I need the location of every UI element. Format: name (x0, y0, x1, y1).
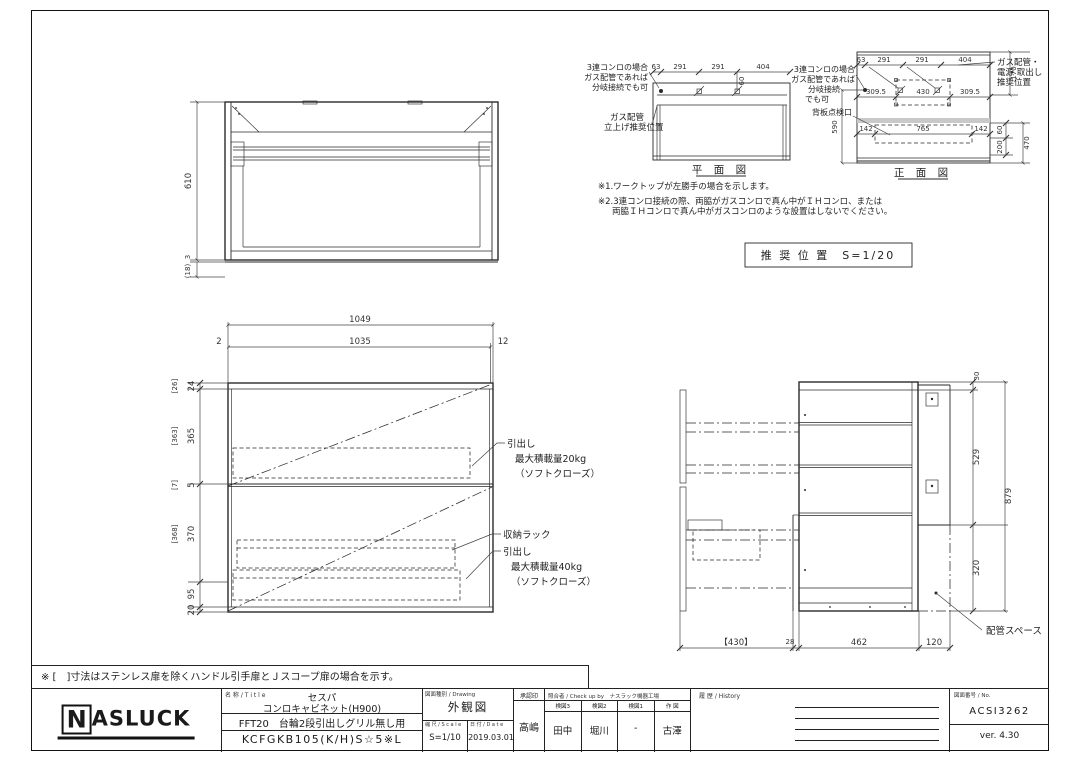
drawer1-softclose: （ソフトクローズ） (515, 468, 600, 480)
drawing-number-cell: 図面番号 / No. ACSI3262 ver. 4.30 (949, 689, 1049, 752)
dim-1035: 1035 (349, 337, 371, 347)
plan-branch-label-3: 分岐接続でも可 (592, 82, 648, 92)
history-line (795, 740, 939, 741)
dim-120: 120 (926, 638, 942, 648)
dim-5: 5 (187, 482, 197, 487)
bracket-note-row: ※ [ ]寸法はステンレス扉を除くハンドル引手扉とＪスコープ扉の場合を示す。 (31, 665, 589, 688)
front-view-annotations: 引出し 最大積載量20kg （ソフトクローズ） 収納ラック 引出し 最大積載量4… (452, 438, 600, 588)
check-col-1-header: 検図1 (618, 702, 654, 712)
dim-3: 3 (184, 255, 192, 259)
dim-430: 【430】 (719, 638, 752, 648)
check-col-3-header: 検図3 (545, 702, 581, 712)
outlet-label-3: 推奨位置 (997, 77, 1032, 88)
dim-365: 365 (187, 428, 197, 444)
history-line (795, 707, 939, 708)
check-col-3: 検図3 田中 (545, 701, 582, 752)
rec-front-view: 63 291 291 404 309.5 430 309.5 142 765 1… (791, 52, 1042, 179)
check-col-2-header: 検図2 (582, 702, 618, 712)
drawer2-label: 引出し (503, 546, 532, 558)
drawer2-capacity: 最大積載量40kg (511, 561, 582, 573)
front-view-cabinet (228, 383, 493, 612)
bracket-note-text: ※ [ ]寸法はステンレス扉を除くハンドル引手扉とＪスコープ扉の場合を示す。 (41, 672, 399, 683)
history-cell: 履 歴 / History (691, 689, 949, 752)
check-col-2-name: 堀川 (582, 723, 618, 737)
top-view-drawing: 610 3 (18) (170, 85, 515, 300)
scale-header: 縮 尺 / S c a l e (425, 721, 461, 728)
dim-2: 2 (216, 337, 221, 347)
approval-name: 高嶋 (514, 719, 544, 734)
recf-dim-404: 404 (958, 56, 972, 64)
rec-plan-view: 63 291 291 404 60 3連コンロの場合 ガス配管であれば 分岐接続… (584, 62, 892, 217)
drawing-version: ver. 4.30 (950, 731, 1049, 741)
nasluck-logo: NASLUCK (58, 702, 195, 739)
recf-dim-430: 430 (916, 88, 929, 96)
recf-dim-765: 765 (916, 125, 929, 133)
dim-320: 320 (972, 560, 982, 576)
plan-riser-label-2: 立上げ推奨位置 (604, 122, 664, 133)
recf-dim-590: 590 (831, 120, 839, 133)
recf-dim-200: 200 (996, 140, 1004, 153)
side-view-dimensions-bottom: 【430】 28 462 120 (677, 611, 953, 651)
outlet-label-1: ガス配管・ (997, 57, 1040, 68)
dim-b26: [26] (171, 379, 179, 394)
recf-dim-60: 60 (996, 126, 1004, 135)
dim-24: 24 (187, 381, 197, 392)
plan-branch-label-2: ガス配管であれば (584, 72, 648, 82)
top-view-dimensions: 610 3 (18) (184, 102, 225, 278)
drawing-number: ACSI3262 (950, 706, 1049, 717)
check-col-draw-header: 作 図 (655, 702, 691, 712)
dim-1049: 1049 (349, 315, 371, 325)
check-section: 照合者 / Check up by ナスラック機器工場 検図3 田中 検図2 堀… (545, 689, 691, 752)
check-col-draw: 作 図 古澤 (655, 701, 691, 752)
rack-label: 収納ラック (503, 529, 551, 541)
check-col-draw-name: 古澤 (655, 723, 691, 737)
drawing-type-cell: 図面種別 / Drawing 外観図 縮 尺 / S c a l e S=1/1… (423, 689, 514, 752)
recf-dim-142b: 142 (974, 125, 987, 133)
approval-cell: 承認印 高嶋 (514, 689, 545, 752)
dim-879: 879 (1004, 488, 1014, 504)
logo-cell: NASLUCK (31, 689, 222, 752)
drawing-number-header: 図面番号 / No. (954, 691, 990, 699)
history-line (795, 718, 939, 719)
drawing-type-header: 図面種別 / Drawing (425, 690, 475, 698)
drawing-type: 外観図 (423, 699, 513, 715)
drawer2-softclose: （ソフトクローズ） (511, 576, 596, 588)
recf-branch-label-1: 3連コンロの場合 (794, 64, 855, 74)
check-header: 照合者 / Check up by ナスラック機器工場 (548, 692, 659, 700)
drawer1-label: 引出し (507, 438, 536, 450)
date-value: 2019.03.01 (468, 733, 514, 742)
side-view-drawing: 30 529 320 879 【430】 28 462 120 配管スペース (660, 360, 1070, 660)
dim-462: 462 (851, 638, 867, 648)
rec-note-1: ※1.ワークトップが左勝手の場合を示します。 (598, 181, 774, 192)
product-spec: FFT20 台輪2段引出しグリル無し用 (222, 715, 422, 730)
plan-dim-404: 404 (756, 63, 770, 71)
check-col-1: 検図1 - (618, 701, 655, 752)
side-view-cabinet (793, 382, 950, 611)
drawer1-capacity: 最大積載量20kg (515, 453, 586, 465)
title-block: NASLUCK 名 称 / T i t l e セスパ コンロキャビネット(H9… (31, 688, 1049, 751)
date-cell: 日 付 / D a t e 2019.03.01 (468, 720, 514, 752)
front-view-drawing: 1049 1035 2 12 [26] 24 [363] 365 [7] 5 (140, 310, 670, 660)
history-header: 履 歴 / History (699, 691, 740, 700)
plan-dim-63: 63 (652, 63, 661, 71)
recf-dim-309a: 309.5 (866, 88, 886, 96)
check-col-1-name: - (618, 723, 654, 734)
approval-header: 承認印 (514, 691, 544, 700)
recf-branch-label-2: ガス配管であれば (791, 74, 855, 84)
dim-30: 30 (973, 372, 981, 381)
recf-dim-142a: 142 (859, 125, 872, 133)
recommended-position-label: 推 奨 位 置 S=1/20 (761, 248, 895, 262)
dim-610: 610 (184, 173, 194, 189)
recommended-position-drawing: 63 291 291 404 60 3連コンロの場合 ガス配管であれば 分岐接続… (590, 35, 1060, 280)
check-col-3-name: 田中 (545, 723, 581, 737)
date-header: 日 付 / D a t e (470, 721, 503, 728)
dim-12: 12 (498, 337, 509, 347)
plan-riser-label-1: ガス配管 (610, 112, 644, 123)
pipe-space-label: 配管スペース (986, 625, 1042, 637)
front-view-dimensions-left: [26] 24 [363] 365 [7] 5 [368] 370 95 20 (171, 379, 228, 616)
dim-20: 20 (187, 605, 197, 616)
rec-front-caption: 正 面 図 (894, 167, 952, 179)
scale-cell: 縮 尺 / S c a l e S=1/10 (423, 720, 468, 752)
plan-dim-291b: 291 (711, 63, 724, 71)
rec-note-2a: ※2.3連コンロ接続の際、両脇がガスコンロで真ん中がＩＨコンロ、または (598, 196, 883, 207)
dim-28: 28 (786, 638, 795, 646)
recf-branch-label-3: 分岐接続 (808, 84, 840, 94)
dim-95: 95 (187, 589, 197, 600)
logo-letter-n: N (62, 704, 92, 734)
product-code: KCFGKB105(K/H)S☆5※L (222, 733, 422, 746)
dim-b368: [368] (171, 524, 179, 543)
recf-dim-291a: 291 (877, 56, 890, 64)
access-port-label: 背板点検口 (812, 107, 852, 117)
dim-18: (18) (184, 264, 192, 279)
recommended-position-box: 推 奨 位 置 S=1/20 (745, 243, 912, 267)
front-view-dimensions-top: 1049 1035 2 12 (216, 315, 508, 383)
dim-b7: [7] (171, 480, 179, 490)
scale-value: S=1/10 (423, 733, 467, 743)
check-col-2: 検図2 堀川 (582, 701, 619, 752)
outlet-label-2: 電源 取出し (997, 67, 1042, 78)
title-cell: 名 称 / T i t l e セスパ コンロキャビネット(H900) FFT2… (222, 689, 423, 752)
drawing-sheet: 610 3 (18) 1049 (0, 0, 1080, 763)
dim-b363: [363] (171, 426, 179, 445)
side-view-pipe-annotation: 配管スペース (935, 592, 1042, 638)
rec-note-2b: 両脇ＩＨコンロで真ん中がガスコンロのような設置はしないでください。 (612, 206, 892, 217)
logo-letters-asluck: ASLUCK (92, 706, 191, 730)
side-view-drawers-open (680, 390, 799, 611)
dim-529: 529 (972, 449, 982, 465)
recf-branch-label-4: でも可 (805, 95, 829, 104)
recf-dim-309b: 309.5 (960, 88, 980, 96)
plan-branch-label-1: 3連コンロの場合 (587, 62, 648, 72)
plan-dim-291a: 291 (673, 63, 686, 71)
dim-370: 370 (187, 526, 197, 542)
recf-dim-291b: 291 (915, 56, 928, 64)
top-view-cabinet (225, 101, 498, 262)
recf-dim-63: 63 (857, 56, 866, 64)
history-line (795, 729, 939, 730)
plan-view-caption: 平 面 図 (692, 164, 750, 176)
recf-dim-470: 470 (1023, 136, 1031, 149)
plan-dim-60: 60 (738, 77, 746, 86)
